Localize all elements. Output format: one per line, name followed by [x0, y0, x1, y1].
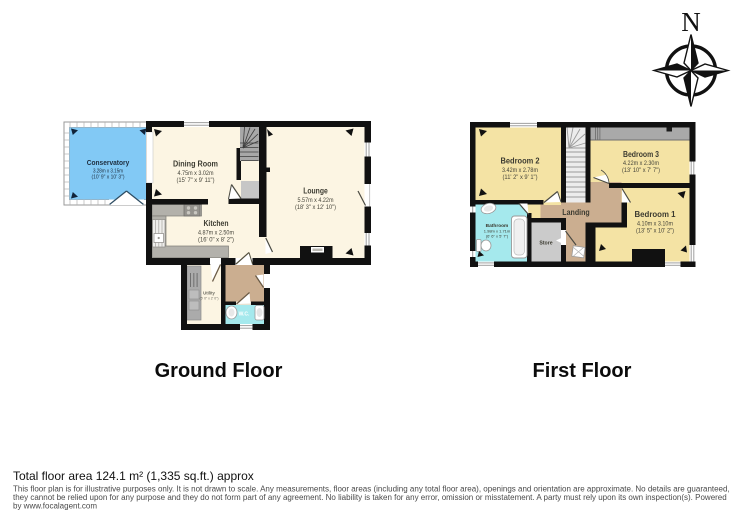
- svg-text:Conservatory: Conservatory: [87, 158, 130, 167]
- svg-text:First Floor: First Floor: [533, 360, 632, 382]
- svg-text:Ground Floor: Ground Floor: [155, 360, 283, 382]
- svg-text:Dining Room: Dining Room: [173, 160, 218, 169]
- svg-text:Bedroom 2: Bedroom 2: [501, 157, 541, 166]
- svg-text:(5' 0" x 2' 0"): (5' 0" x 2' 0"): [200, 297, 219, 301]
- svg-text:(6' 6" x 5' 7"): (6' 6" x 5' 7"): [486, 234, 509, 239]
- svg-text:4.10m x 3.10m: 4.10m x 3.10m: [637, 221, 673, 228]
- svg-text:(18' 3" x 12' 10"): (18' 3" x 12' 10"): [295, 204, 336, 211]
- svg-text:they cannot be relied upon for: they cannot be relied upon for any purpo…: [13, 493, 727, 502]
- svg-text:(15' 7" x 9' 11"): (15' 7" x 9' 11"): [177, 177, 215, 184]
- svg-text:Bedroom 1: Bedroom 1: [635, 210, 677, 219]
- svg-text:Total floor area 124.1 m² (1,3: Total floor area 124.1 m² (1,335 sq.ft.)…: [13, 469, 254, 483]
- svg-text:4.22m x 2.30m: 4.22m x 2.30m: [623, 160, 659, 167]
- svg-text:(13' 10" x 7' 7"): (13' 10" x 7' 7"): [622, 167, 660, 174]
- svg-text:W.C.: W.C.: [239, 312, 250, 318]
- svg-text:Utility: Utility: [203, 291, 215, 296]
- svg-text:5.57m x 4.22m: 5.57m x 4.22m: [298, 197, 334, 204]
- svg-text:Landing: Landing: [562, 208, 590, 217]
- svg-text:(16' 0" x 8' 2"): (16' 0" x 8' 2"): [198, 237, 234, 244]
- svg-text:(10' 9" x 10' 3"): (10' 9" x 10' 3"): [92, 175, 125, 181]
- svg-text:by www.focalagent.com: by www.focalagent.com: [13, 502, 97, 511]
- svg-text:4.75m x 3.02m: 4.75m x 3.02m: [178, 170, 214, 177]
- svg-text:4.87m x 2.50m: 4.87m x 2.50m: [198, 230, 234, 237]
- svg-text:Lounge: Lounge: [303, 187, 328, 196]
- svg-text:(13' 5" x 10' 2"): (13' 5" x 10' 2"): [636, 228, 674, 235]
- svg-text:Kitchen: Kitchen: [204, 219, 229, 228]
- svg-text:N: N: [681, 7, 701, 37]
- svg-text:Bedroom 3: Bedroom 3: [623, 150, 659, 159]
- svg-text:Store: Store: [539, 241, 552, 247]
- svg-text:3.42m x 2.78m: 3.42m x 2.78m: [502, 167, 538, 174]
- svg-text:(11' 2" x 9' 1"): (11' 2" x 9' 1"): [503, 174, 538, 181]
- svg-text:3.28m x 3.15m: 3.28m x 3.15m: [93, 168, 123, 174]
